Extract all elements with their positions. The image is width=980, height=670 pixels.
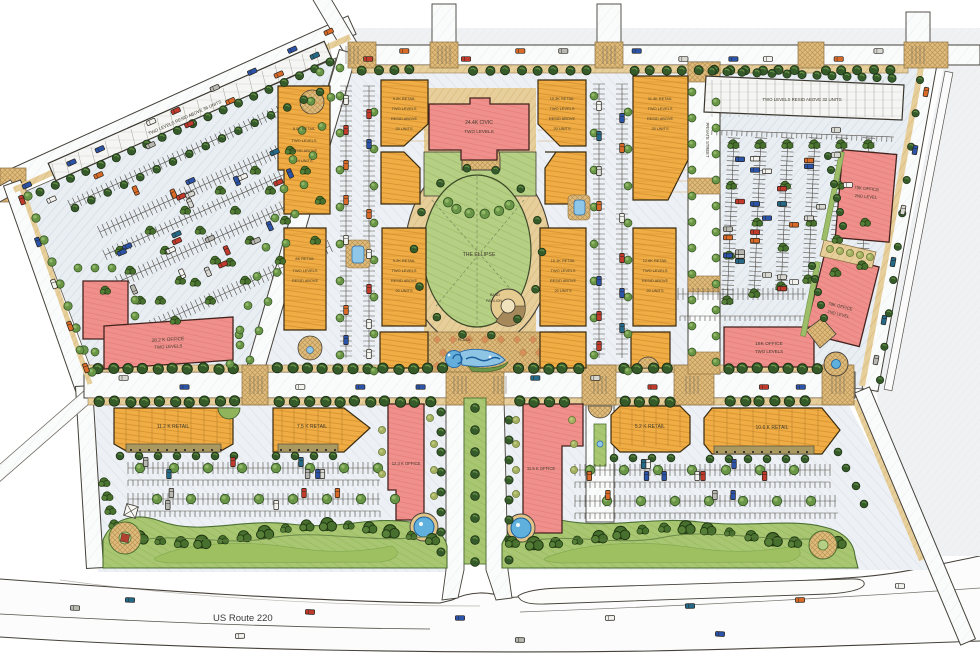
svg-text:RESID ABOVE: RESID ABOVE xyxy=(549,116,576,121)
svg-text:RESID ABOVE: RESID ABOVE xyxy=(292,278,319,283)
svg-text:20 UNITS: 20 UNITS xyxy=(646,288,663,293)
svg-text:TWO LEVELS: TWO LEVELS xyxy=(392,106,417,111)
svg-text:11.2 K RETAIL: 11.2 K RETAIL xyxy=(157,424,190,430)
svg-text:9.2K RETAIL: 9.2K RETAIL xyxy=(393,258,416,263)
svg-text:20 UNITS: 20 UNITS xyxy=(554,288,571,293)
svg-text:RESID ABOVE: RESID ABOVE xyxy=(291,148,318,153)
svg-text:5.2 K RETAIL: 5.2 K RETAIL xyxy=(635,424,665,430)
svg-text:20 UNITS: 20 UNITS xyxy=(651,126,668,131)
svg-text:PRIVATE STREET: PRIVATE STREET xyxy=(705,123,710,158)
svg-text:20 UNITS: 20 UNITS xyxy=(395,288,412,293)
svg-text:TWO LEVELS: TWO LEVELS xyxy=(648,106,673,111)
svg-text:10.1K RETAIL: 10.1K RETAIL xyxy=(551,258,576,263)
svg-text:TWO LEVELS: TWO LEVELS xyxy=(550,106,575,111)
svg-text:12.6K RETAIL: 12.6K RETAIL xyxy=(643,258,668,263)
svg-text:THE ELLIPSE: THE ELLIPSE xyxy=(463,252,496,258)
svg-text:TWO LEVELS: TWO LEVELS xyxy=(392,268,417,273)
svg-text:US Route 220: US Route 220 xyxy=(213,613,273,624)
svg-text:TWO LEVELS: TWO LEVELS xyxy=(755,349,783,354)
svg-text:RESID ABOVE: RESID ABOVE xyxy=(391,116,418,121)
svg-text:8.0K RETAIL: 8.0K RETAIL xyxy=(293,126,316,131)
svg-text:11.3K RETAIL: 11.3K RETAIL xyxy=(648,96,673,101)
svg-text:7.5 K RETAIL: 7.5 K RETAIL xyxy=(297,424,327,430)
svg-text:10.6 K RETAIL: 10.6 K RETAIL xyxy=(756,425,789,431)
svg-text:20 UNITS: 20 UNITS xyxy=(553,126,570,131)
svg-text:RESID ABOVE: RESID ABOVE xyxy=(550,278,577,283)
svg-text:TWO LEVELS: TWO LEVELS xyxy=(292,138,317,143)
svg-text:TWO LEVELS: TWO LEVELS xyxy=(293,268,318,273)
svg-text:10.3K RETAIL: 10.3K RETAIL xyxy=(550,96,575,101)
svg-text:TWO LEVELS: TWO LEVELS xyxy=(643,268,668,273)
svg-text:20 UNITS: 20 UNITS xyxy=(395,126,412,131)
svg-text:24.4K CIVIC: 24.4K CIVIC xyxy=(465,120,493,126)
svg-text:RESID ABOVE: RESID ABOVE xyxy=(642,278,669,283)
svg-text:12.3 K OFFICE: 12.3 K OFFICE xyxy=(392,461,421,466)
svg-text:BAND: BAND xyxy=(490,293,500,297)
svg-text:TWO LEVELS: TWO LEVELS xyxy=(551,268,576,273)
svg-text:14 UNITS: 14 UNITS xyxy=(295,158,312,163)
svg-text:16K OFFICE: 16K OFFICE xyxy=(755,341,782,347)
svg-text:11.5 K OFFICE: 11.5 K OFFICE xyxy=(527,466,556,471)
svg-text:PAVILION: PAVILION xyxy=(486,299,502,303)
svg-text:RESID ABOVE: RESID ABOVE xyxy=(647,116,674,121)
svg-text:PLAZA: PLAZA xyxy=(458,337,471,342)
svg-text:RESID ABOVE: RESID ABOVE xyxy=(391,278,418,283)
svg-text:8K RETAIL: 8K RETAIL xyxy=(295,256,315,261)
svg-text:TWO LEVELS: TWO LEVELS xyxy=(464,129,493,134)
svg-text:9.2K RETAIL: 9.2K RETAIL xyxy=(393,96,416,101)
